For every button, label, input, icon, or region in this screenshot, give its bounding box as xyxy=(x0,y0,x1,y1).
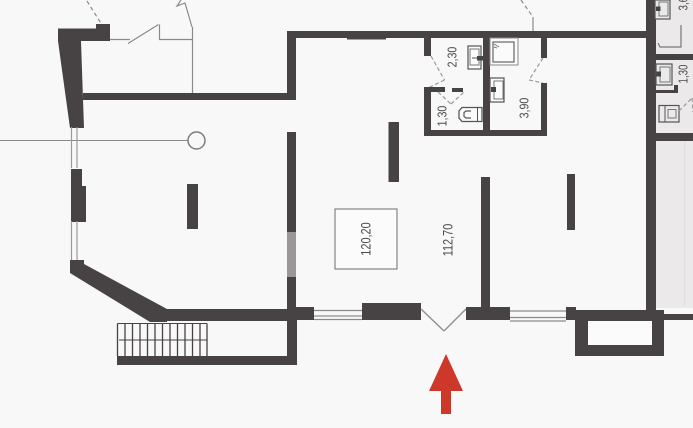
svg-text:120,20: 120,20 xyxy=(358,222,374,255)
svg-text:3,90: 3,90 xyxy=(516,97,531,118)
svg-text:112,70: 112,70 xyxy=(440,224,456,257)
svg-text:2,30: 2,30 xyxy=(444,46,459,67)
svg-text:3,60: 3,60 xyxy=(677,0,690,10)
svg-text:1,30: 1,30 xyxy=(677,65,690,84)
svg-text:1,30: 1,30 xyxy=(434,105,449,126)
